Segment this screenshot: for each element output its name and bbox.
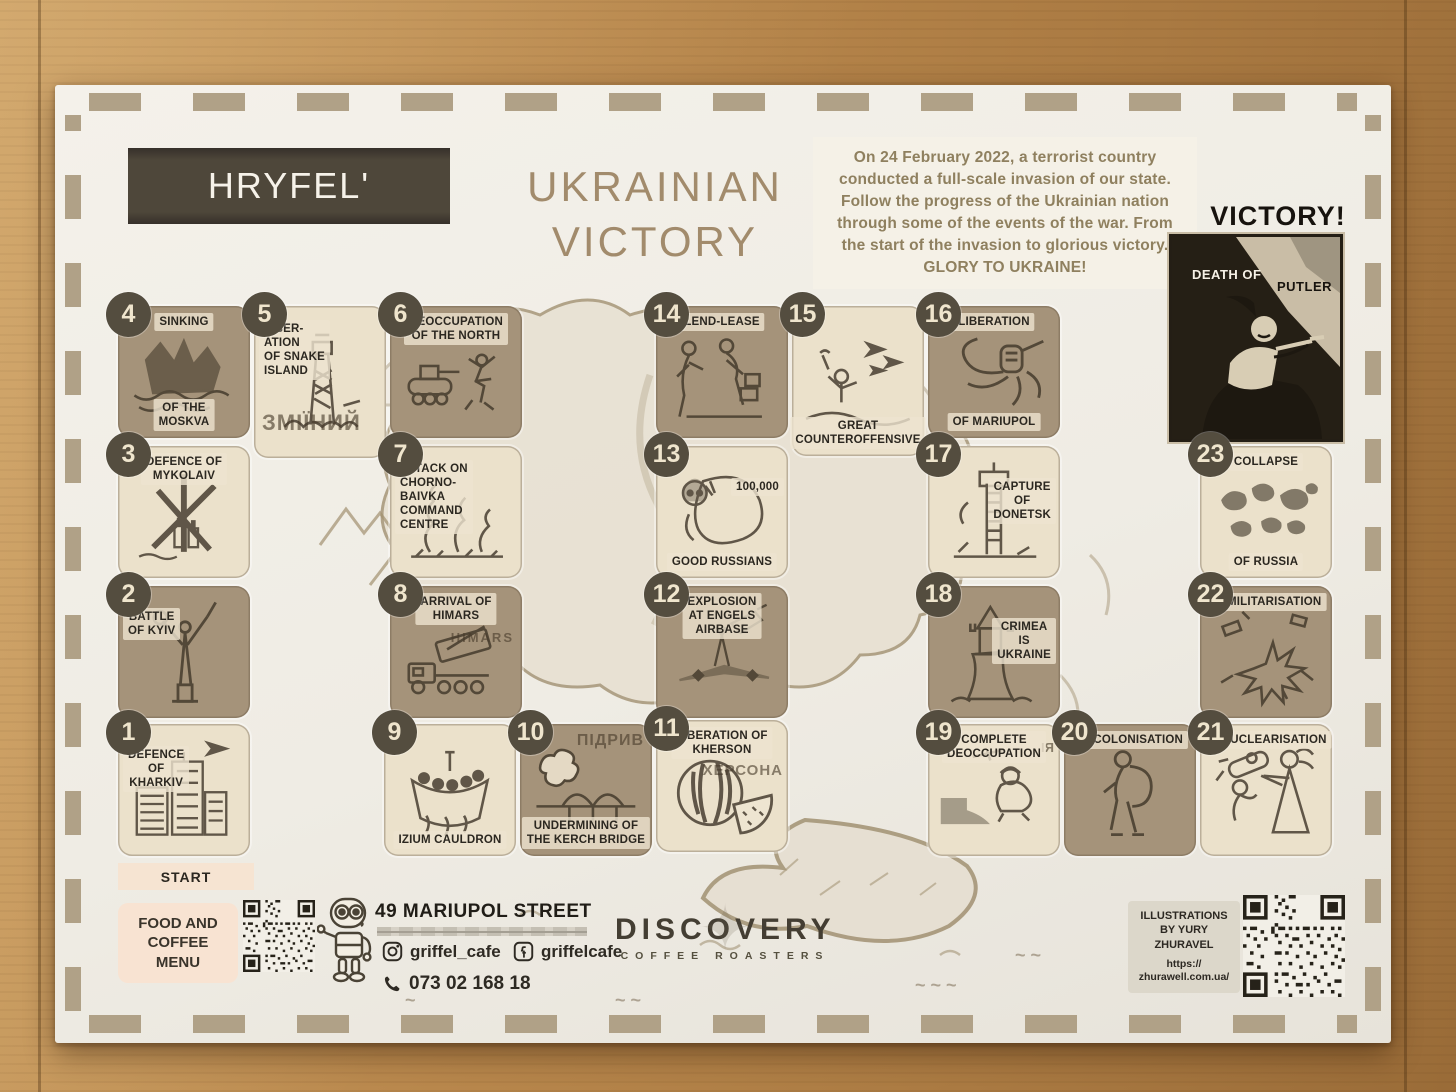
tile-number: 19	[916, 710, 961, 755]
sea-squiggle: ~ ~	[615, 990, 641, 1011]
tile-number: 4	[106, 292, 151, 337]
page-title: UKRAINIAN VICTORY	[485, 160, 825, 269]
tile-number: 23	[1188, 432, 1233, 477]
victory-poster: DEATH OF PUTLER	[1172, 237, 1340, 439]
tile-number: 21	[1188, 710, 1233, 755]
sea-squiggle: ~ ~ ~	[915, 975, 957, 996]
tile-number: 8	[378, 572, 423, 617]
placemat-paper: HRYFEL' UKRAINIAN VICTORY On 24 February…	[55, 85, 1391, 1043]
facebook-handle-row: griffelcafe	[513, 941, 622, 962]
tile-label: OF RUSSIA	[1229, 553, 1303, 571]
phone-icon	[382, 975, 401, 994]
tile-number: 13	[644, 432, 689, 477]
tile-number: 20	[1052, 710, 1097, 755]
instagram-handle-row: griffel_cafe	[382, 941, 501, 962]
tile-label: COLLAPSE	[1229, 453, 1303, 471]
board-tile-14: 14LEND-LEASE	[656, 306, 788, 438]
poster-label-putler: PUTLER	[1277, 279, 1332, 294]
board-tile-15: 15GREAT COUNTEROFFENSIVE	[792, 306, 924, 456]
dashed-border-right	[1365, 115, 1381, 1011]
tile-number: 3	[106, 432, 151, 477]
dashed-border-bottom	[89, 1015, 1357, 1033]
tile-label: SINKING	[154, 313, 213, 331]
facebook-icon	[513, 941, 534, 962]
tile-label: CRIMEA IS UKRAINE	[992, 618, 1056, 664]
tile-number: 15	[780, 292, 825, 337]
board-tile-2: 2BATTLE OF KYIV	[118, 586, 250, 718]
board-tile-11: 11LIBERATION OF KHERSONХЕРСОНА	[656, 720, 788, 852]
tile-label: OF MARIUPOL	[948, 413, 1041, 431]
board-tile-19: 19COMPLETE DEOCCUPATIONІЯ	[928, 724, 1060, 856]
tile-number: 5	[242, 292, 287, 337]
wood-plank-seam	[1404, 0, 1407, 1092]
robot-mascot-illustration	[317, 895, 379, 991]
board-tile-10: 10UNDERMINING OF THE KERCH BRIDGEПІДРИВ	[520, 724, 652, 856]
tile-number: 18	[916, 572, 961, 617]
board-tile-6: 6DEOCCUPATION OF THE NORTH	[390, 306, 522, 438]
tile-number: 10	[508, 710, 553, 755]
board-tile-21: 21DENUCLEARISATION	[1200, 724, 1332, 856]
tile-number: 16	[916, 292, 961, 337]
illustrator-url: https:// zhurawell.com.ua/	[1139, 958, 1229, 985]
board-tile-18: 18CRIMEA IS UKRAINE	[928, 586, 1060, 718]
board-tile-20: 20DECOLONISATION	[1064, 724, 1196, 856]
tile-label: EXPLOSION AT ENGELS AIRBASE	[683, 593, 762, 639]
board-tile-17: 17CAPTURE OF DONETSK	[928, 446, 1060, 578]
illustrator-credit-box: ILLUSTRATIONS BY YURY ZHURAVEL https:// …	[1128, 901, 1240, 993]
tile-label: UNDERMINING OF THE KERCH BRIDGE	[522, 817, 650, 849]
board-tile-7: 7ATTACK ON CHORNO- BAIVKA COMMAND CENTRE	[390, 446, 522, 578]
intro-paragraph: On 24 February 2022, a terrorist country…	[813, 137, 1197, 289]
brand-name: HRYFEL'	[208, 165, 370, 207]
tile-label: CAPTURE OF DONETSK	[988, 478, 1056, 524]
tile-label: LIBERATION	[953, 313, 1034, 331]
board-tile-5: 5LIBER- ATION OF SNAKE ISLANDЗМІЇНИЙ	[254, 306, 386, 458]
tile-label: GREAT COUNTEROFFENSIVE	[790, 417, 925, 449]
board-tile-3: 3DEFENCE OF MYKOLAIV	[118, 446, 250, 578]
tile-label: GOOD RUSSIANS	[667, 553, 777, 571]
tile-number: 17	[916, 432, 961, 477]
tile-number: 12	[644, 572, 689, 617]
board-tile-8: 8ARRIVAL OF HIMARSHIMARS	[390, 586, 522, 718]
phone-number: 073 02 168 18	[409, 973, 531, 995]
start-label: START	[118, 863, 254, 890]
tile-decorative-cyrillic-text: ЗМІЇНИЙ	[262, 410, 361, 436]
crossed-out-old-address	[377, 927, 587, 936]
photo-of-board-game-placemat: HRYFEL' UKRAINIAN VICTORY On 24 February…	[0, 0, 1456, 1092]
tile-decorative-cyrillic-text: HIMARS	[451, 630, 514, 645]
tile-decorative-cyrillic-text: ХЕРСОНА	[703, 762, 783, 779]
poster-label-death-of: DEATH OF	[1192, 267, 1261, 282]
brand-logo-box: HRYFEL'	[128, 148, 450, 224]
coffee-roaster-logo: ✦ DISCOVERY COFFEE ROASTERS	[615, 913, 835, 962]
board-tile-9: 9IZIUM CAULDRON	[384, 724, 516, 856]
tile-label: OF THE MOSKVA	[154, 399, 215, 431]
tile-label: LEND-LEASE	[679, 313, 764, 331]
instagram-handle: griffel_cafe	[410, 942, 501, 962]
tile-number: 2	[106, 572, 151, 617]
sea-squiggle: ~	[405, 990, 416, 1011]
board-tile-22: 22DEMILITARISATION	[1200, 586, 1332, 718]
dashed-border-left	[65, 115, 81, 1011]
dashed-border-top	[89, 93, 1357, 111]
street-address: 49 MARIUPOL STREET	[375, 901, 592, 923]
tile-number: 6	[378, 292, 423, 337]
board-tile-23: 23COLLAPSEOF RUSSIA	[1200, 446, 1332, 578]
instagram-icon	[382, 941, 403, 962]
wood-plank-seam	[38, 0, 41, 1092]
illustrator-credit: ILLUSTRATIONS BY YURY ZHURAVEL	[1140, 909, 1227, 952]
illustrator-qr-code	[1243, 895, 1345, 997]
tile-number: 9	[372, 710, 417, 755]
facebook-handle: griffelcafe	[541, 942, 622, 962]
tile-label: ARRIVAL OF HIMARS	[415, 593, 496, 625]
board-tile-4: 4SINKINGOF THE MOSKVA	[118, 306, 250, 438]
victory-heading: VICTORY!	[1173, 201, 1383, 232]
tile-label: 100,000	[731, 478, 784, 496]
sea-squiggle: ~ ~	[1015, 945, 1041, 966]
tile-number: 1	[106, 710, 151, 755]
tile-number: 22	[1188, 572, 1233, 617]
roaster-emblem-icon: ✦	[698, 891, 752, 966]
tile-decorative-cyrillic-text: ПІДРИВ	[577, 732, 644, 750]
tile-label: IZIUM CAULDRON	[393, 831, 506, 849]
board-tile-16: 16LIBERATIONOF MARIUPOL	[928, 306, 1060, 438]
tile-number: 14	[644, 292, 689, 337]
food-coffee-menu-label: FOOD AND COFFEE MENU	[118, 903, 238, 983]
menu-qr-code	[243, 900, 315, 972]
board-tile-13: 13100,000GOOD RUSSIANS	[656, 446, 788, 578]
tile-number: 11	[644, 706, 689, 751]
tile-number: 7	[378, 432, 423, 477]
board-tile-1: 1DEFENCE OF KHARKIV	[118, 724, 250, 856]
tile-label: DEFENCE OF MYKOLAIV	[141, 453, 227, 485]
board-tile-12: 12EXPLOSION AT ENGELS AIRBASE	[656, 586, 788, 718]
